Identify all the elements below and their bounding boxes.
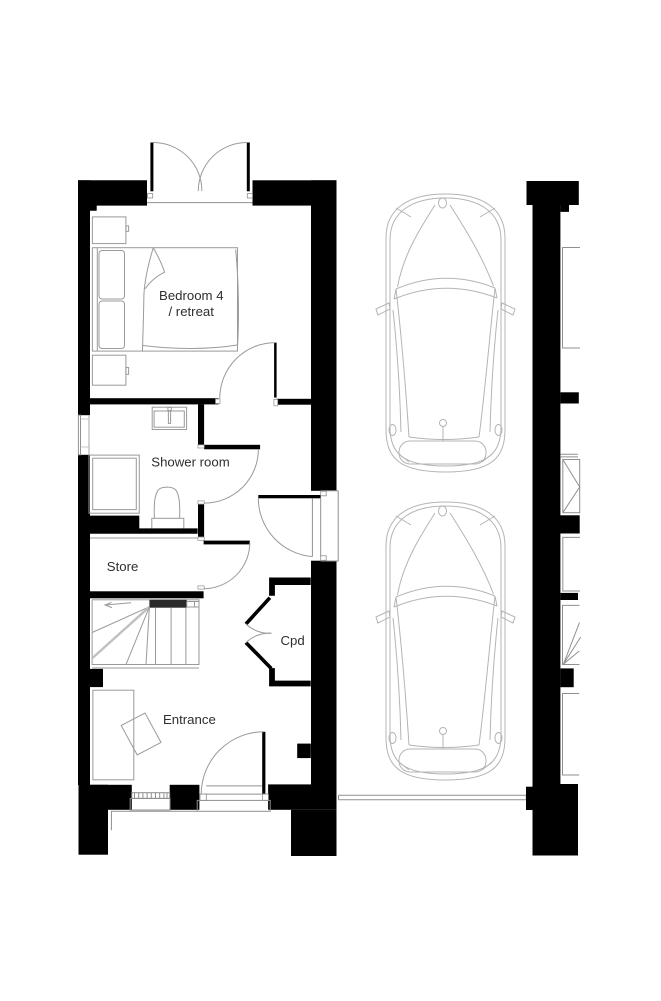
svg-text:Shower room: Shower room — [151, 455, 229, 470]
svg-text:/ retreat: / retreat — [168, 304, 214, 319]
svg-text:Bedroom 4: Bedroom 4 — [159, 288, 224, 303]
svg-text:Store: Store — [107, 559, 139, 574]
svg-text:Cpd: Cpd — [281, 633, 305, 648]
svg-text:Entrance: Entrance — [163, 712, 216, 727]
